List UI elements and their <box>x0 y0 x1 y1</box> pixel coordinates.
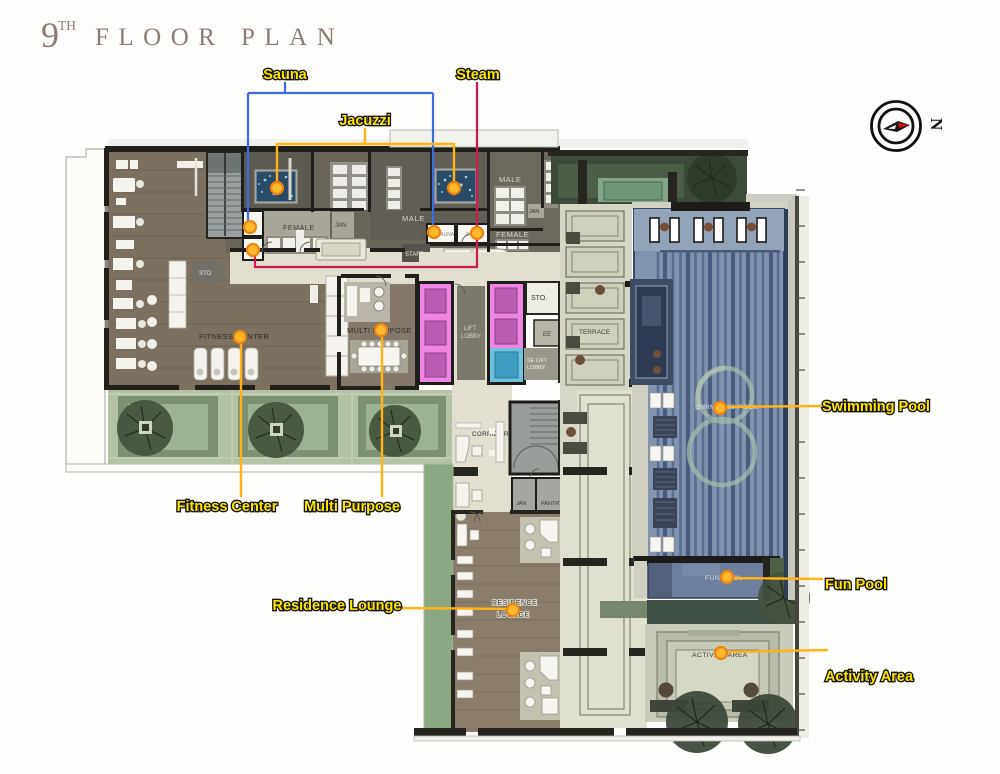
svg-text:TH: TH <box>58 18 76 33</box>
svg-text:TERRACE: TERRACE <box>579 329 611 336</box>
svg-text:LOBBY: LOBBY <box>461 334 481 340</box>
svg-text:Jacuzzi: Jacuzzi <box>339 113 391 129</box>
svg-text:PLAN: PLAN <box>241 24 344 51</box>
svg-text:JAN: JAN <box>335 223 346 229</box>
svg-text:Activity Area: Activity Area <box>825 669 914 685</box>
svg-text:LOBBY: LOBBY <box>527 365 546 371</box>
svg-text:MALE: MALE <box>499 175 521 184</box>
svg-text:PANTRY: PANTRY <box>541 501 563 507</box>
svg-text:FLOOR: FLOOR <box>95 24 224 51</box>
svg-text:Steam: Steam <box>456 67 500 83</box>
svg-text:N: N <box>927 118 946 131</box>
svg-text:Sauna: Sauna <box>263 67 307 83</box>
svg-text:Multi Purpose: Multi Purpose <box>304 499 400 515</box>
svg-text:EE: EE <box>543 332 551 338</box>
svg-text:LIFT: LIFT <box>464 326 477 332</box>
svg-text:Residence Lounge: Residence Lounge <box>273 598 402 614</box>
svg-text:Swimming Pool: Swimming Pool <box>822 399 930 415</box>
svg-text:JAN: JAN <box>516 501 526 507</box>
svg-text:Fun Pool: Fun Pool <box>825 577 887 593</box>
svg-text:SE LIFT: SE LIFT <box>527 358 548 364</box>
svg-text:MALE: MALE <box>402 214 425 223</box>
svg-text:9: 9 <box>41 15 59 55</box>
svg-text:Fitness Center: Fitness Center <box>177 499 278 515</box>
svg-text:JAN: JAN <box>529 209 539 215</box>
svg-text:FEMALE: FEMALE <box>496 230 529 239</box>
svg-text:STO: STO <box>199 271 212 277</box>
svg-text:STO.: STO. <box>531 295 547 302</box>
